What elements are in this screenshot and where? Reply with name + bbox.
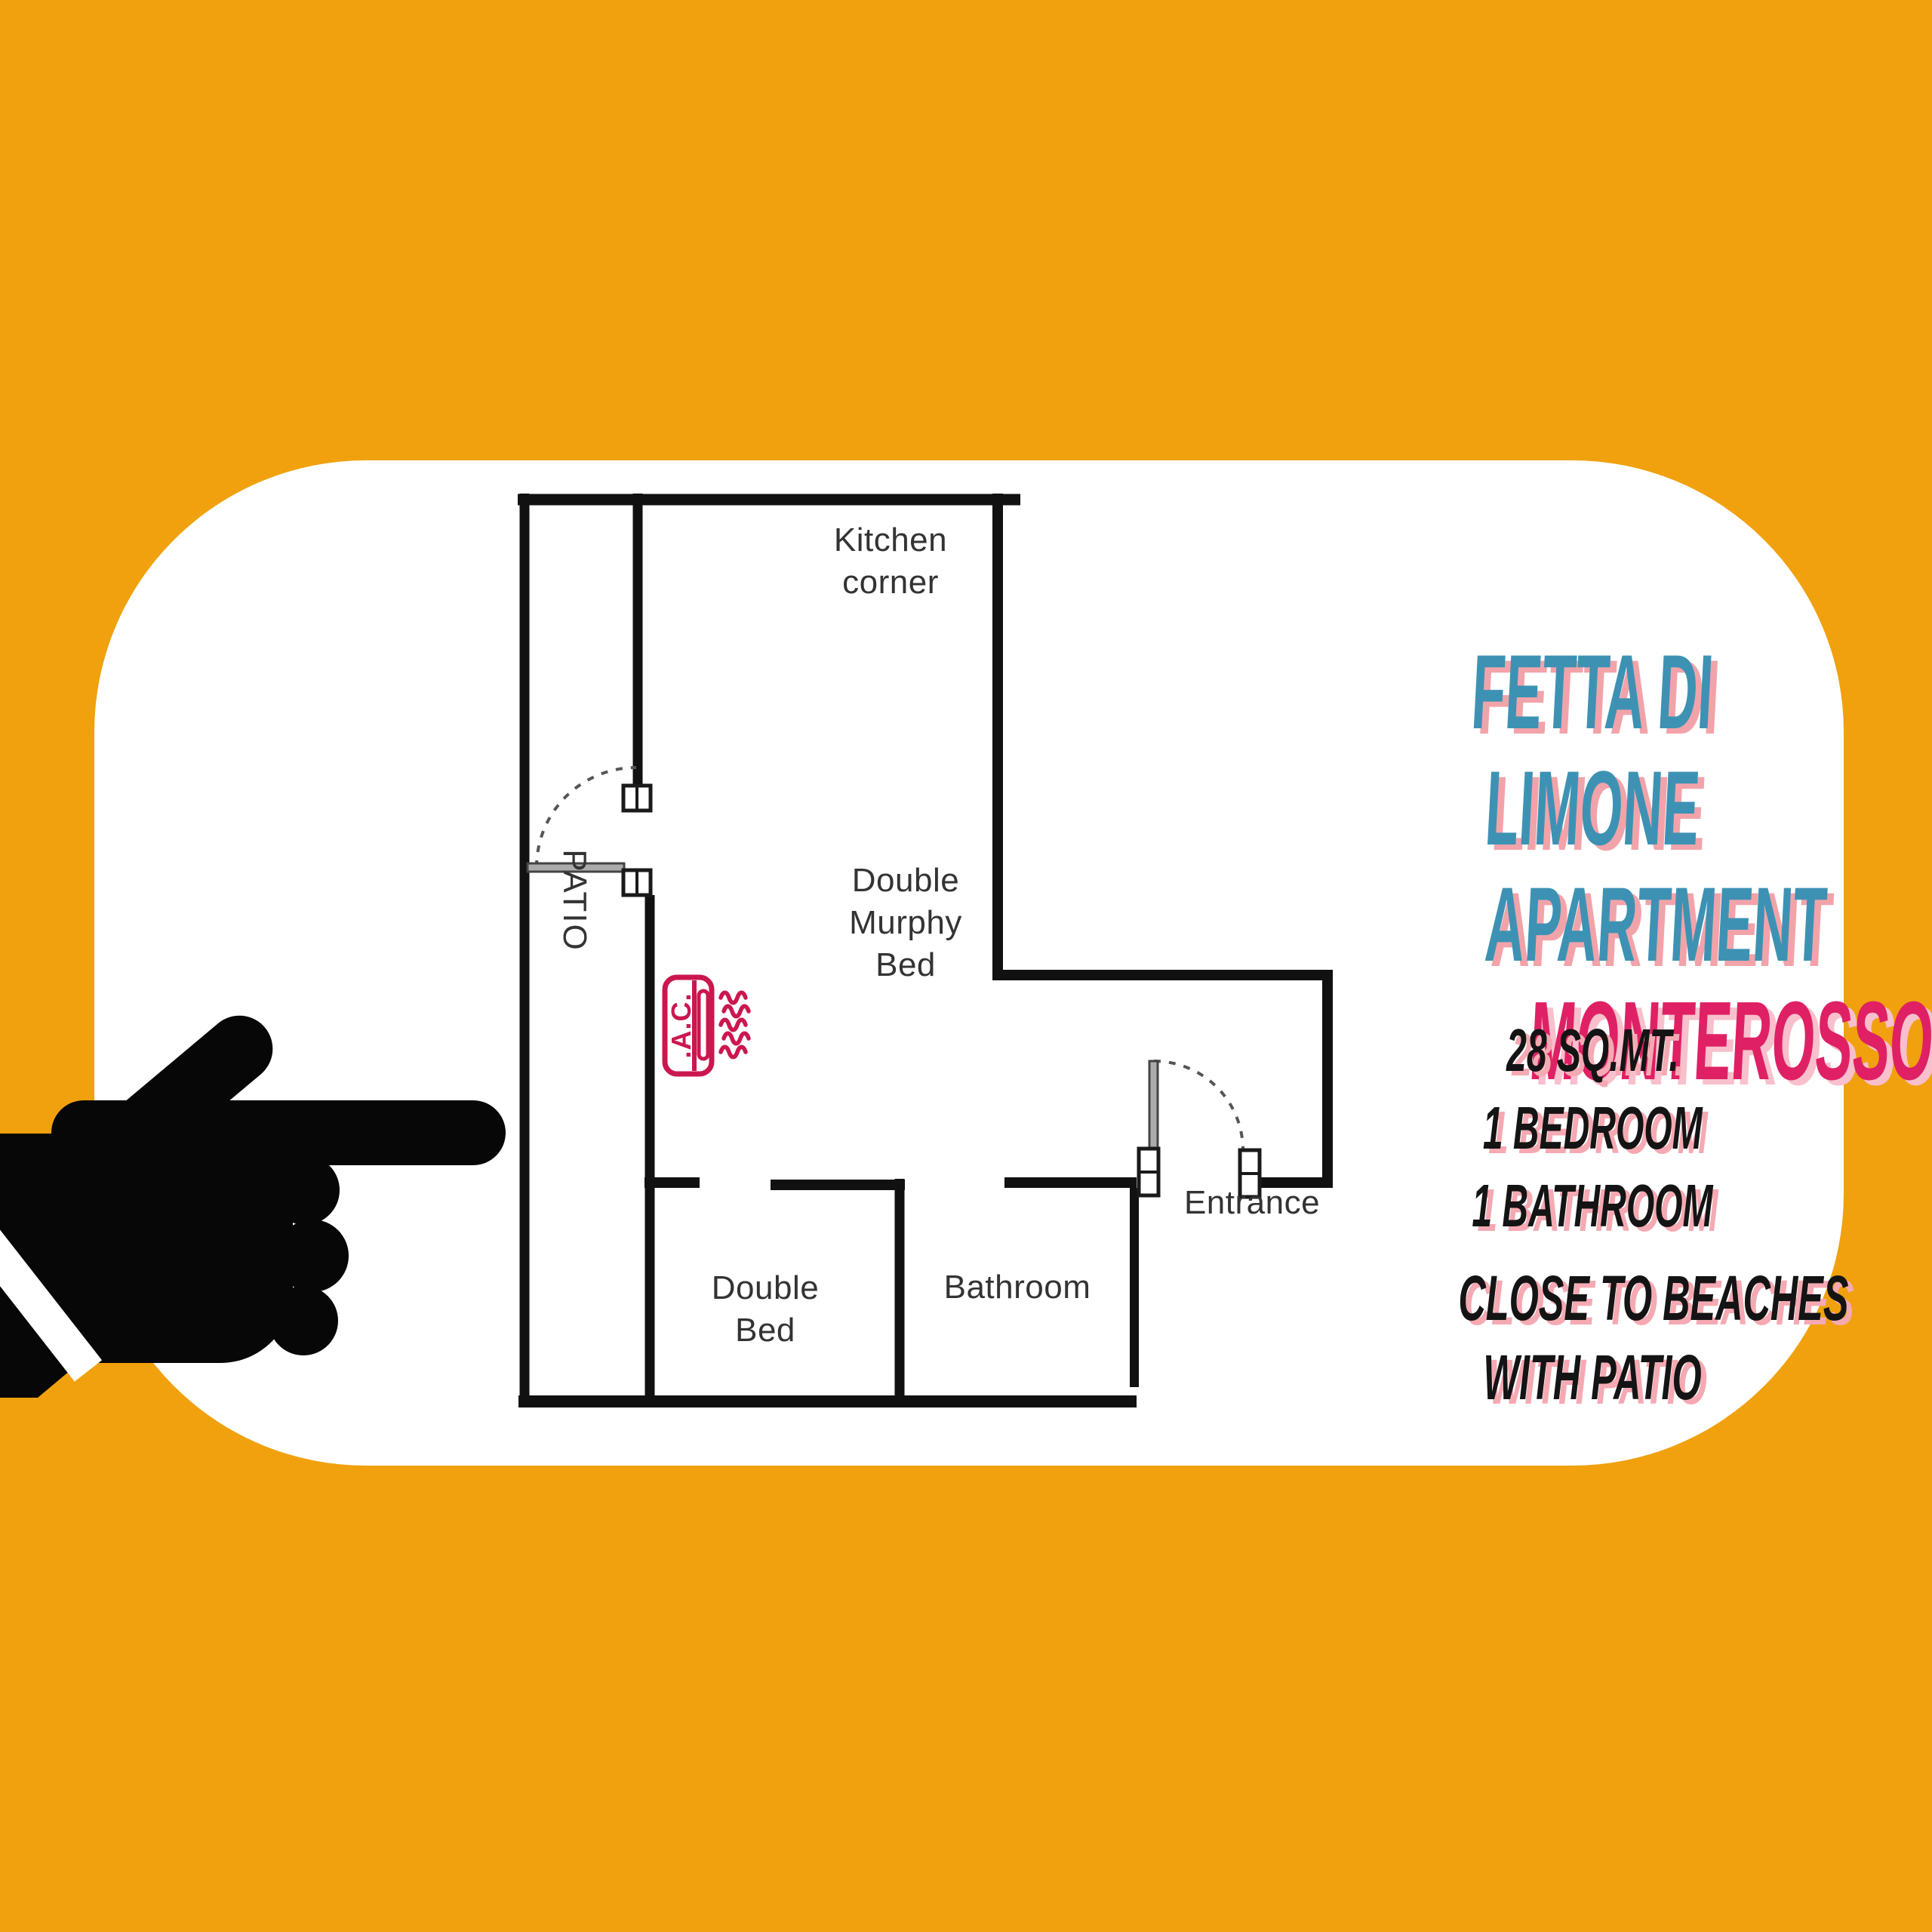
label-kitchen-corner: Kitchen corner (834, 519, 947, 604)
label-entrance: Entrance (1184, 1182, 1320, 1224)
highlight-patio-text: WITH PATIO (1483, 1347, 1701, 1407)
label-double-bed: Double Bed (712, 1267, 819, 1352)
poster-background: { "poster": { "background_color": "#F0A1… (0, 0, 1932, 1932)
label-double-murphy-bed: Double Murphy Bed (849, 860, 962, 986)
apartment-highlights: CLOSE TO BEACHES WITH PATIO (1328, 1268, 1857, 1426)
title-text-1: FETTA DI (1469, 651, 1715, 734)
spec-bedroom: 1 BEDROOM (1328, 1098, 1857, 1176)
spec-bedroom-text: 1 BEDROOM (1483, 1098, 1703, 1158)
spec-bathroom-text: 1 BATHROOM (1472, 1176, 1712, 1236)
spec-size-text: 28 SQ.MT. (1506, 1020, 1678, 1081)
apartment-specs: 28 SQ.MT. 1 BEDROOM 1 BATHROOM (1328, 1020, 1857, 1254)
highlight-beaches-text: CLOSE TO BEACHES (1458, 1268, 1848, 1328)
spec-size: 28 SQ.MT. (1328, 1020, 1857, 1098)
highlight-beaches: CLOSE TO BEACHES (1328, 1268, 1857, 1347)
spec-bathroom: 1 BATHROOM (1328, 1176, 1857, 1254)
label-bathroom: Bathroom (944, 1266, 1091, 1309)
label-patio: PATIO (553, 849, 595, 952)
highlight-patio: WITH PATIO (1328, 1347, 1857, 1426)
title-text-3: APARTMENT (1484, 883, 1829, 966)
title-text-2: LIMONE (1484, 767, 1702, 850)
